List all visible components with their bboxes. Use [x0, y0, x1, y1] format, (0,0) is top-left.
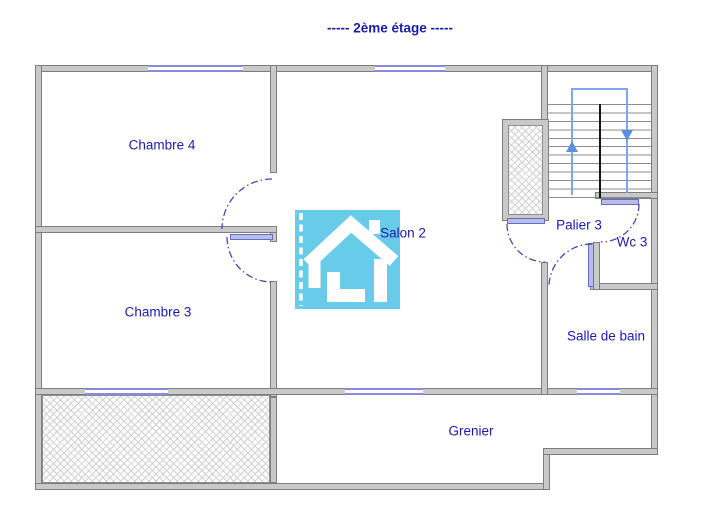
wall-wc3-sdb: [590, 283, 658, 290]
wall-hatch-grenier: [270, 397, 277, 483]
shaft-hatch-fill: [508, 125, 543, 215]
wall-chambre4-chambre3: [35, 226, 277, 233]
room-label-chambre3: Chambre 3: [125, 305, 192, 320]
hatched-area-grenier: [42, 395, 270, 483]
down-arrow-icon: [621, 130, 633, 141]
room-label-salle-de-bain: Salle de bain: [567, 329, 645, 344]
outer-wall-left: [35, 65, 42, 490]
house-right-wall: [374, 259, 387, 302]
window-salon-south: [345, 388, 423, 395]
room-label-chambre4: Chambre 4: [129, 138, 196, 153]
window-chambre4-north: [148, 65, 243, 72]
room-label-salon2: Salon 2: [380, 226, 426, 241]
room-label-wc3: Wc 3: [617, 235, 648, 250]
window-salon-north: [375, 65, 445, 72]
door-leaf-wc3: [601, 199, 639, 205]
up-arrow-icon: [566, 141, 578, 152]
wall-salon-stairs: [541, 65, 548, 124]
door-leaf-salon-palier: [507, 218, 545, 224]
house-door-L: [327, 272, 365, 302]
door-arc-chambre3: [227, 237, 272, 282]
window-sdb-south: [577, 388, 620, 395]
wall-chambre4-salon: [270, 65, 277, 173]
floorplan-canvas: ----- 2ème étage -----: [0, 0, 702, 523]
door-leaf-chambre3: [230, 234, 273, 240]
room-label-palier3: Palier 3: [556, 218, 602, 233]
door-arc-sdb: [549, 244, 592, 287]
wall-salon-sdb: [541, 262, 548, 395]
door-arc-chambre4: [222, 179, 272, 229]
outer-wall-bottom-right: [543, 448, 658, 455]
house-chimney: [369, 220, 380, 234]
wall-chambre3-salon: [270, 281, 277, 397]
outer-wall-right: [651, 65, 658, 455]
outer-wall-top: [35, 65, 658, 72]
room-label-grenier: Grenier: [448, 424, 493, 439]
house-left-wall: [309, 257, 321, 288]
floor-title: ----- 2ème étage -----: [327, 21, 453, 36]
door-arc-salon-palier: [507, 224, 545, 262]
hatched-shaft: [503, 120, 548, 220]
window-chambre3-south: [85, 388, 168, 395]
stair-guide-top-line: [571, 88, 628, 90]
outer-wall-bottom-left: [35, 483, 550, 490]
door-leaf-sdb: [588, 243, 594, 287]
wall-palier-wc3: [593, 242, 600, 290]
stair-divider-line: [599, 104, 601, 198]
